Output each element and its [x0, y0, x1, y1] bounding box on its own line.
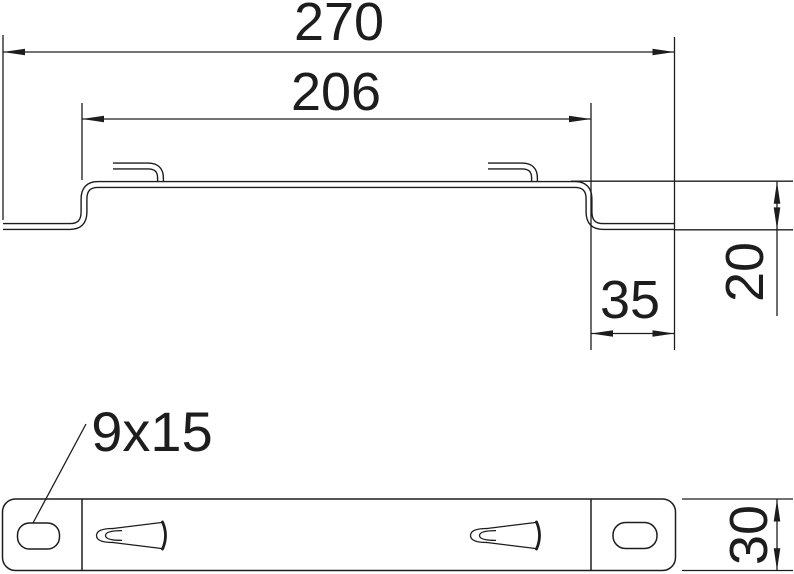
arrowhead-35-left [591, 330, 613, 337]
arrowhead-206-right [569, 116, 591, 123]
profile-outline [3, 185, 675, 227]
arrowhead-20-up [774, 182, 781, 204]
slot-size-label: 9x15 [91, 400, 212, 463]
dimension-label-overall-width: 270 [294, 0, 384, 52]
slot-right [613, 523, 657, 549]
technical-drawing-page: 270 206 35 20 30 9x15 [0, 0, 794, 574]
dimension-label-profile-height: 20 [715, 242, 775, 302]
arrowhead-270-right [653, 49, 675, 56]
dimension-label-rail-width: 30 [719, 505, 779, 565]
dimension-label-inner-width: 206 [291, 62, 381, 122]
slot-left [18, 523, 60, 549]
distance-rail-drawing: 270 206 35 20 30 9x15 [0, 0, 794, 574]
profile-core [3, 185, 675, 227]
arrowhead-206-left [82, 116, 104, 123]
arrowhead-35-right [653, 330, 675, 337]
dimension-labels: 270 206 35 20 30 9x15 [91, 0, 779, 565]
rail-outline [3, 499, 676, 571]
dimension-label-end-section: 35 [600, 270, 660, 330]
dimensioning [3, 35, 793, 571]
arrowhead-270-left [3, 49, 25, 56]
side-view [3, 166, 675, 227]
arrowhead-20-down [774, 207, 781, 229]
top-view [3, 499, 676, 571]
